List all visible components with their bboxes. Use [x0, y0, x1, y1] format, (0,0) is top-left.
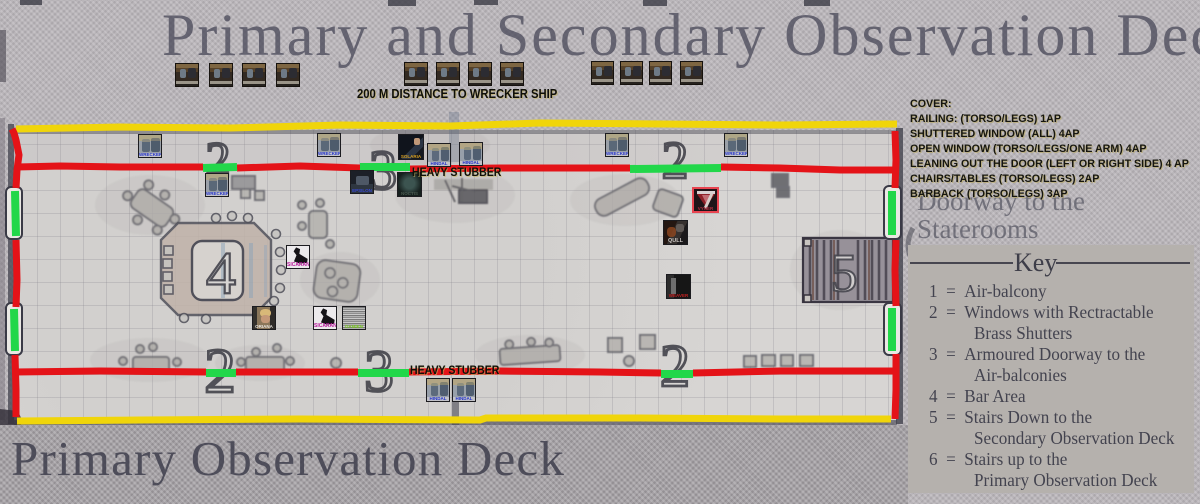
svg-text:4: 4 — [206, 240, 236, 306]
svg-text:5: 5 — [831, 243, 858, 303]
svg-text:2: 2 — [662, 132, 689, 190]
svg-text:2: 2 — [660, 333, 690, 399]
